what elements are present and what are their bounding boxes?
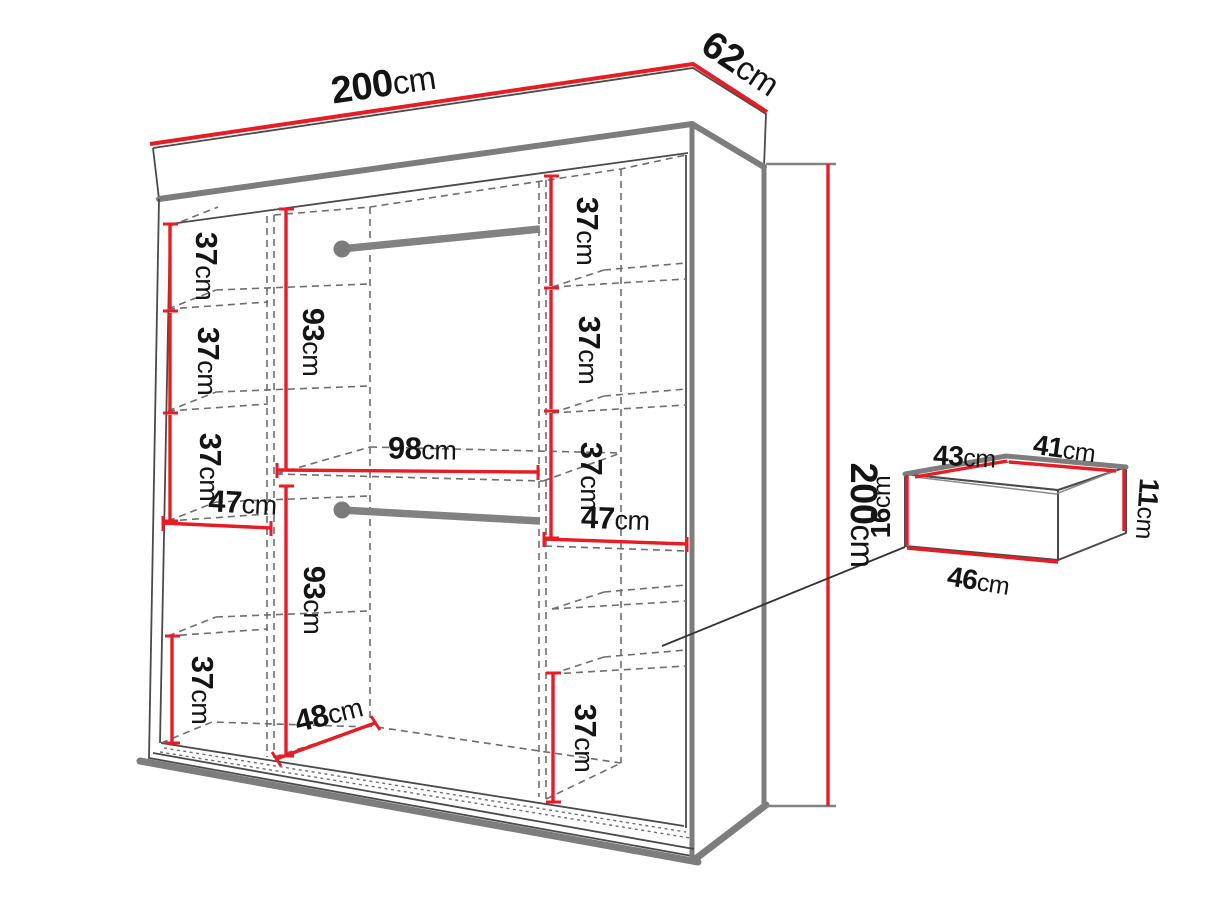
hanging-rail-top [334, 229, 541, 258]
dim-mid-hang-bottom: 93cm [297, 566, 332, 634]
dim-left-shelf-1: 37cm [189, 232, 224, 300]
dimension-lines [150, 64, 836, 806]
dim-left-col-width: 47cm [207, 483, 277, 522]
interior-partitions [161, 155, 686, 799]
dim-left-bottom: 37cm [185, 656, 220, 724]
wardrobe-dimension-diagram: 200cm 62cm 200cm 37cm 37cm 37cm 47cm 37c… [0, 0, 1217, 912]
dim-mid-width: 98cm [388, 430, 457, 466]
dim-right-shelf-1: 37cm [570, 197, 605, 265]
dim-mid-hang-top: 93cm [296, 308, 331, 376]
right-column-shelves [545, 263, 687, 674]
dim-right-bottom: 37cm [568, 704, 603, 772]
dim-right-col-width: 47cm [581, 500, 651, 537]
dim-drawer-side-top: 43cm [932, 439, 996, 473]
hanging-rail-bottom [334, 502, 541, 522]
dim-drawer-front-height: 16cm [865, 476, 896, 538]
dim-left-shelf-2: 37cm [191, 327, 226, 395]
dim-right-shelf-2: 37cm [572, 316, 607, 384]
dim-drawer-front-width: 46cm [945, 560, 1012, 600]
diagram-canvas: 200cm 62cm 200cm 37cm 37cm 37cm 47cm 37c… [0, 0, 1217, 912]
dim-drawer-back-height: 11cm [1130, 477, 1165, 540]
